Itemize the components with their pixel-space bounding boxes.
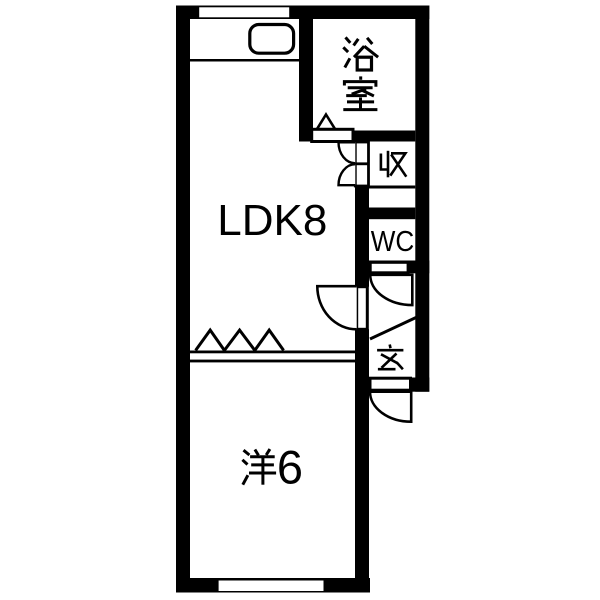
svg-text:LDK8: LDK8	[217, 196, 327, 245]
svg-text:6: 6	[277, 440, 303, 493]
svg-text:WC: WC	[371, 226, 415, 258]
